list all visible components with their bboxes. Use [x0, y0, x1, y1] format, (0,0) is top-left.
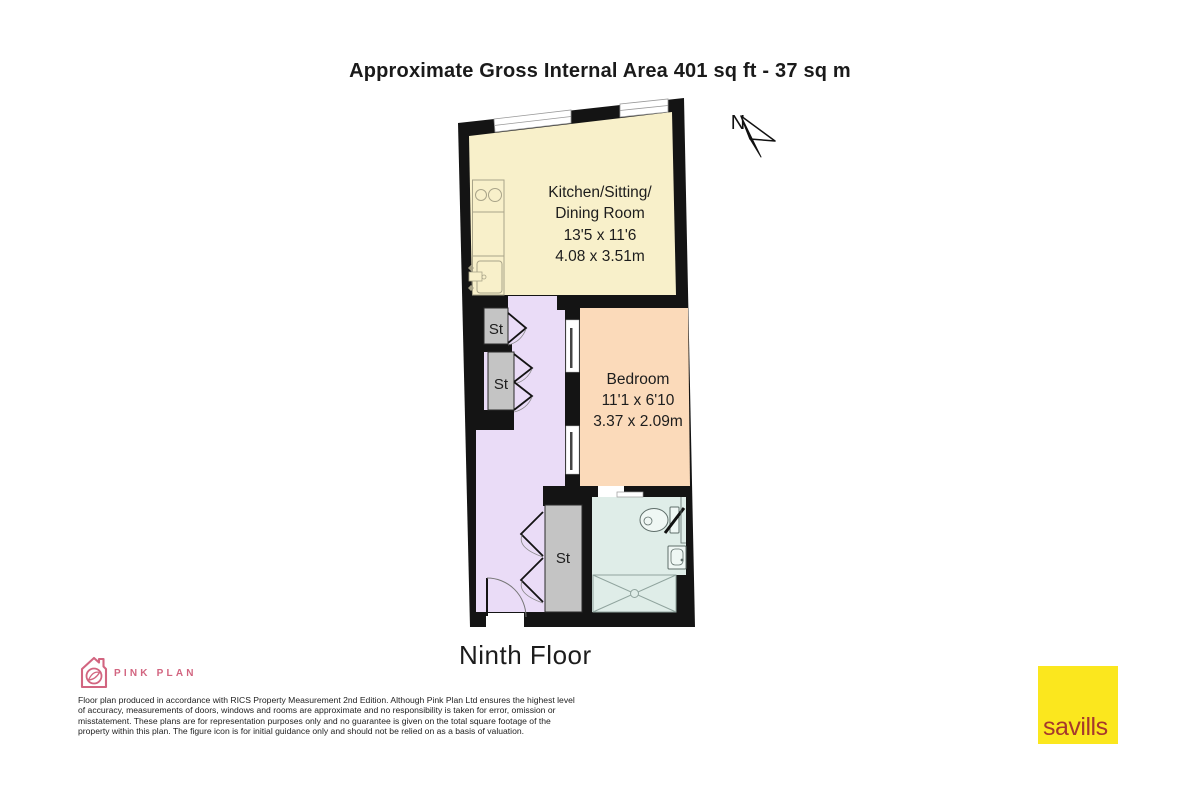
storage-label: St: [489, 321, 504, 338]
savills-logo: savills: [1038, 666, 1118, 744]
pocket-door: [566, 320, 579, 372]
pocket-door: [566, 426, 579, 474]
savills-wordmark: savills: [1043, 713, 1108, 742]
toilet-icon: [640, 507, 684, 533]
kitchen-label: Dining Room: [555, 205, 645, 222]
pink-plan-name: PINK PLAN: [114, 668, 197, 679]
bedroom-dims-imperial: 11'1 x 6'10: [602, 392, 675, 409]
bedroom-dims-metric: 3.37 x 2.09m: [593, 413, 683, 430]
wall-segment: [484, 344, 512, 352]
kitchen-dims-metric: 4.08 x 3.51m: [555, 248, 645, 265]
storage-label: St: [556, 550, 571, 567]
floor-name: Ninth Floor: [459, 640, 592, 671]
wall-segment: [543, 486, 582, 506]
storage-label: St: [494, 376, 509, 393]
basin-icon: [668, 546, 686, 569]
wall-segment: [480, 410, 514, 430]
pink-plan-brand: PINK PLAN: [78, 654, 338, 690]
page: Approximate Gross Internal Area 401 sq f…: [0, 0, 1200, 794]
disclaimer-text: Floor plan produced in accordance with R…: [78, 695, 582, 737]
kitchen-dims-imperial: 13'5 x 11'6: [564, 227, 637, 244]
north-arrow-icon: N: [731, 112, 775, 157]
page-title: Approximate Gross Internal Area 401 sq f…: [0, 60, 1200, 83]
kitchen-room: [469, 112, 676, 295]
bedroom-label: Bedroom: [607, 371, 670, 388]
floor-plan: N Kitchen/Sitting/ Dining Room 13'5 x 11…: [440, 85, 790, 645]
kitchen-label: Kitchen/Sitting/: [548, 184, 652, 201]
pink-plan-logo-icon: [78, 654, 110, 690]
